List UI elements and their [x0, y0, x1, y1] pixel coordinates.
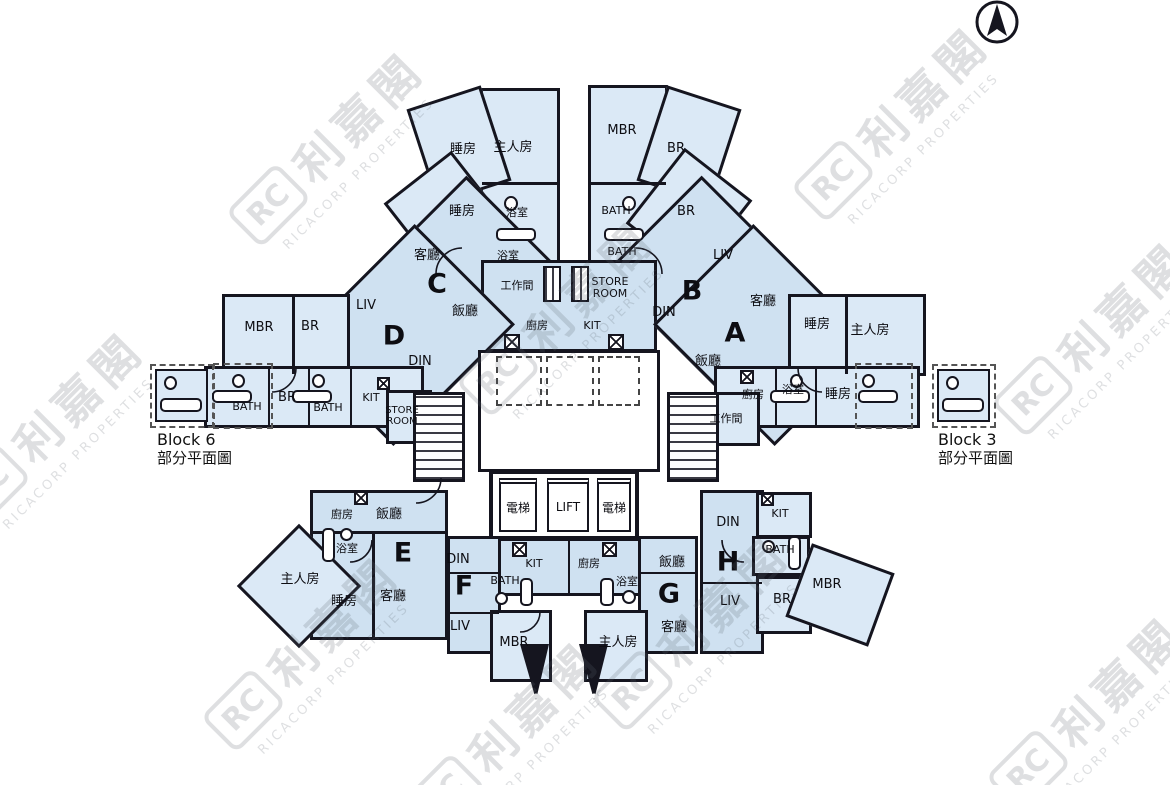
watermark-latin-text: RICACORP PROPERTIES — [443, 673, 626, 785]
ricacorp-watermark: RC利嘉閣RICACORP PROPERTIES — [785, 10, 1016, 241]
block6-caption: Block 6 部分平面圖 — [157, 430, 232, 467]
floor-plan-canvas: 電梯 LIFT 電梯 — [0, 0, 1170, 785]
ricacorp-logo-icon: RC — [985, 727, 1071, 785]
toilet — [232, 374, 245, 388]
wall — [482, 182, 558, 185]
block6-caption-line2: 部分平面圖 — [157, 449, 232, 467]
shaft-xbox — [354, 491, 368, 505]
wall — [815, 368, 817, 426]
lift-car-label: LIFT — [556, 500, 580, 514]
toilet — [164, 376, 177, 390]
ricacorp-watermark: RC利嘉閣RICACORP PROPERTIES — [980, 600, 1170, 785]
wall — [640, 572, 696, 574]
lift-car: LIFT — [547, 478, 589, 532]
ricacorp-logo-icon: RC — [990, 352, 1076, 438]
toilet — [946, 376, 959, 390]
room-g-master — [584, 610, 648, 682]
ricacorp-logo-icon: RC — [400, 752, 486, 785]
shaft-xbox — [512, 542, 527, 557]
staircase-left — [413, 392, 465, 482]
wall — [590, 182, 666, 185]
watermark-cjk-text: 利嘉閣 — [1037, 600, 1170, 761]
wall — [292, 296, 295, 374]
bathtub — [604, 228, 644, 241]
watermark-cjk-text: 利嘉閣 — [0, 315, 158, 476]
wall — [568, 540, 570, 594]
toilet — [762, 540, 775, 553]
toilet — [340, 528, 353, 541]
bathtub — [212, 390, 252, 403]
block3-caption-line2: 部分平面圖 — [938, 449, 1013, 467]
shaft-xbox — [504, 334, 520, 350]
shaft-xbox — [602, 542, 617, 557]
block3-partial-outline — [932, 364, 996, 428]
toilet — [622, 590, 636, 604]
toilet — [312, 374, 325, 388]
bathtub — [858, 390, 898, 403]
bathtub — [600, 578, 614, 606]
room-core-kitchens-bottom — [481, 538, 659, 596]
north-arrow-icon — [977, 2, 1017, 42]
lift-shaft — [496, 356, 542, 406]
bathtub — [322, 528, 335, 562]
bathtub — [496, 228, 536, 241]
bathtub — [942, 398, 984, 412]
block6-partial-outline — [150, 364, 214, 428]
ricacorp-logo-icon: RC — [0, 442, 31, 528]
watermark-latin-text: RICACORP PROPERTIES — [1033, 273, 1170, 456]
toilet — [862, 374, 875, 388]
bathtub — [520, 578, 533, 606]
service-shaft — [543, 266, 561, 302]
toilet — [622, 196, 636, 211]
lift-car: 電梯 — [499, 478, 537, 532]
wall — [268, 368, 270, 426]
bathtub — [160, 398, 202, 412]
ricacorp-logo-icon: RC — [225, 162, 311, 248]
wall — [702, 582, 762, 584]
lift-car-label: 電梯 — [506, 499, 530, 516]
wall — [372, 533, 375, 637]
shaft-xbox — [740, 370, 754, 384]
wall — [449, 612, 499, 614]
toilet — [504, 196, 518, 211]
bathtub — [788, 536, 801, 570]
ricacorp-logo-icon: RC — [790, 137, 876, 223]
watermark-latin-text: RICACORP PROPERTIES — [1028, 648, 1170, 785]
wall — [350, 368, 352, 426]
block6-caption-line1: Block 6 — [157, 430, 232, 449]
service-shaft — [571, 266, 589, 302]
shaft-xbox — [377, 377, 390, 390]
bathtub — [770, 390, 810, 403]
wall — [845, 296, 848, 374]
watermark-latin-text: RICACORP PROPERTIES — [0, 363, 170, 546]
block3-caption: Block 3 部分平面圖 — [938, 430, 1013, 467]
wall — [449, 572, 499, 574]
shaft-xbox — [761, 493, 774, 506]
lift-shaft — [546, 356, 594, 406]
toilet — [495, 592, 508, 605]
lift-shaft — [598, 356, 640, 406]
room-f-master — [490, 610, 552, 682]
watermark-latin-text: RICACORP PROPERTIES — [833, 58, 1016, 241]
watermark-cjk-text: 利嘉閣 — [1042, 225, 1170, 386]
ricacorp-watermark: RC利嘉閣RICACORP PROPERTIES — [985, 225, 1170, 456]
lift-car-label: 電梯 — [602, 499, 626, 516]
watermark-cjk-text: 利嘉閣 — [842, 10, 1003, 171]
staircase-right — [667, 392, 719, 482]
ricacorp-logo-icon: RC — [200, 667, 286, 753]
lift-car: 電梯 — [597, 478, 631, 532]
block3-caption-line1: Block 3 — [938, 430, 1013, 449]
ricacorp-watermark: RC利嘉閣RICACORP PROPERTIES — [0, 315, 170, 546]
toilet — [790, 374, 803, 388]
bathtub — [292, 390, 332, 403]
shaft-xbox — [608, 334, 624, 350]
